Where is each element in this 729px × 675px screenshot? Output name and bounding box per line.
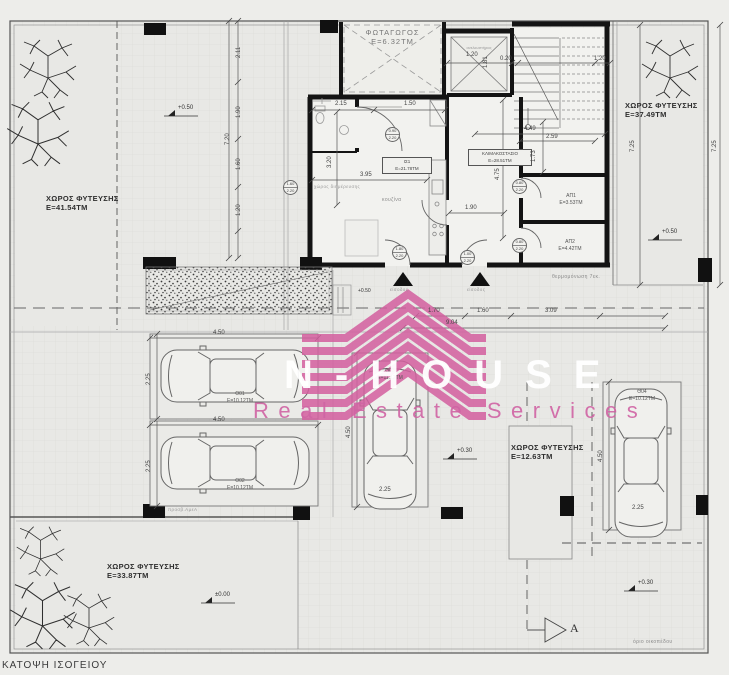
- insulation-note: θερμομόνωση 7εκ.: [552, 274, 600, 280]
- dim-text: 7.25: [712, 140, 720, 152]
- plot-boundary-note: όριο οικοπέδου: [633, 639, 673, 645]
- dim-text: 2.59: [546, 134, 558, 142]
- planting-label-nw: ΧΩΡΟΣ ΦΥΤΕΥΣΗΣΕ=41.54ΤΜ: [46, 194, 119, 213]
- dim-text: 3.95: [360, 172, 372, 180]
- watermark-tagline: Real Estate Services: [253, 398, 647, 424]
- dim-text: 4.75: [495, 168, 503, 180]
- level-value: +0.50: [662, 229, 677, 237]
- dim-text: 2.25: [632, 505, 644, 513]
- watermark-brand: N-HOUSE: [284, 353, 622, 398]
- dim-text: 7.20: [225, 133, 233, 145]
- dim-text: 1.90: [236, 106, 244, 118]
- entrance-label: είσοδος: [467, 287, 485, 293]
- dim-text: 2.25: [146, 460, 154, 472]
- dim-text: 1.20: [236, 204, 244, 216]
- dim-text: 1.60: [477, 308, 489, 316]
- dim-text: 4.49: [524, 126, 536, 134]
- dim-text: 3.09: [545, 308, 557, 316]
- dim-text: 1.73: [531, 150, 539, 162]
- dim-text: 2.25: [379, 487, 391, 495]
- dim-text: 4.50: [598, 450, 606, 462]
- dim-text: 1.81: [483, 56, 491, 68]
- planting-label-ne: ΧΩΡΟΣ ΦΥΤΕΥΣΗΣΕ=37.49ΤΜ: [625, 101, 698, 120]
- living-label: χώρος διημέρευσης: [314, 184, 360, 190]
- level-value: +0.50: [358, 288, 371, 294]
- dim-text: 9.04: [446, 320, 458, 328]
- dim-text: 3.20: [327, 156, 335, 168]
- dim-text: 1.70: [428, 308, 440, 316]
- hedge: [146, 267, 332, 314]
- door-tag: 0.802.20: [512, 238, 527, 253]
- dim-text: 4.50: [346, 426, 354, 438]
- planting-label-mid-right: ΧΩΡΟΣ ΦΥΤΕΥΣΗΣΕ=12.63ΤΜ: [511, 443, 584, 462]
- stairwell-label: ΚΛΙΜΑΚΟΣΤΑΣΙΟΕ=28.51ΤΜ: [468, 149, 532, 166]
- level-value: +0.50: [178, 105, 193, 113]
- storage1-label: ΑΠ1Ε=3.53ΤΜ: [548, 193, 594, 206]
- plan-caption: ΚΑΤΟΨΗ ΙΣΟΓΕΙΟΥ: [2, 660, 107, 673]
- level-value: ±0.00: [215, 592, 230, 600]
- section-letter: A: [570, 621, 579, 636]
- lightwell-label: ΦΩΤΑΓΩΓΟΣΕ=6.32ΤΜ: [343, 28, 442, 47]
- dim-text: 2.15: [335, 101, 347, 109]
- dim-text: 1.50: [404, 101, 416, 109]
- dim-text: 0.20: [500, 56, 512, 64]
- door-tag: 1.602.20: [283, 180, 298, 195]
- planting-label-sw: ΧΩΡΟΣ ΦΥΤΕΥΣΗΣΕ=33.87ΤΜ: [107, 562, 180, 581]
- dim-text: 2.11: [236, 47, 244, 58]
- furniture: [345, 220, 378, 256]
- planting-area-sw: [16, 521, 298, 649]
- dim-text: 1.90: [465, 205, 477, 213]
- dim-text: 1.60: [236, 158, 244, 170]
- dim-text: 7.25: [630, 140, 638, 152]
- entrance-label: είσοδος: [390, 287, 408, 293]
- parking-label-2: Θ02Ε=10.12ΤΜ: [210, 478, 270, 491]
- access-note: προσβ.ΑμεΑ: [168, 507, 197, 513]
- storage2-label: ΑΠ2Ε=4.42ΤΜ: [546, 239, 594, 252]
- elevator-label: ανελκυστήρας: [451, 45, 507, 50]
- door-tag: 1.802.20: [392, 245, 407, 260]
- planting-area-ne: [617, 25, 703, 285]
- dim-text: 4.50: [213, 330, 225, 338]
- planting-area-nw: [15, 26, 116, 326]
- dim-text: 2.25: [146, 373, 154, 385]
- level-value: +0.30: [457, 448, 472, 456]
- kitchen-label: κουζίνα: [382, 197, 401, 203]
- door-tag: 0.902.20: [385, 127, 400, 142]
- door-tag: 1.002.20: [460, 250, 475, 265]
- door-tag: 0.802.20: [512, 179, 527, 194]
- level-value: +0.30: [638, 580, 653, 588]
- unit-label: ΙΣ1Ε=21.78ΤΜ: [382, 157, 432, 174]
- floor-plan: ΧΩΡΟΣ ΦΥΤΕΥΣΗΣΕ=41.54ΤΜ ΧΩΡΟΣ ΦΥΤΕΥΣΗΣΕ=…: [0, 0, 729, 675]
- dim-text: 1.20: [594, 56, 606, 64]
- dim-text: 1.20: [466, 52, 478, 60]
- dim-text: 4.50: [213, 417, 225, 425]
